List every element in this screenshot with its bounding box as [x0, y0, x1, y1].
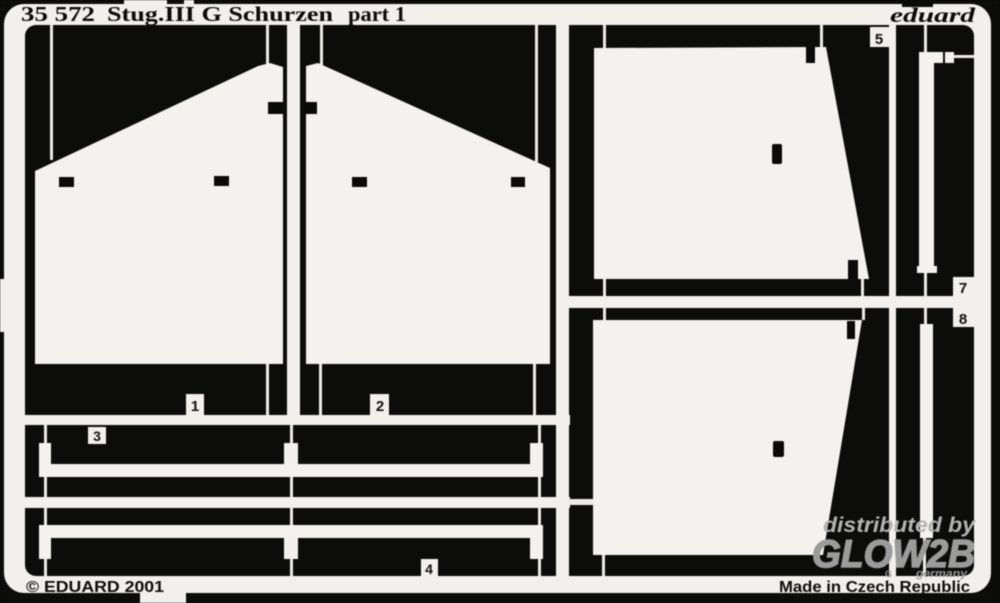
svg-text:Made in Czech Republic: Made in Czech Republic — [779, 579, 970, 596]
svg-text:3: 3 — [93, 428, 101, 444]
svg-text:part 1: part 1 — [348, 2, 406, 26]
svg-text:eduard: eduard — [890, 3, 976, 27]
svg-text:germany: germany — [915, 568, 968, 580]
svg-text:4: 4 — [425, 561, 433, 577]
svg-text:2: 2 — [376, 398, 384, 415]
svg-text:7: 7 — [959, 280, 967, 297]
svg-text:Stug.III G Schurzen: Stug.III G Schurzen — [107, 2, 333, 26]
svg-text:G: G — [885, 569, 892, 579]
svg-text:5: 5 — [875, 31, 883, 48]
svg-text:© EDUARD 2001: © EDUARD 2001 — [26, 579, 164, 596]
svg-text:1: 1 — [191, 398, 199, 415]
svg-text:8: 8 — [959, 311, 967, 328]
svg-text:35 572: 35 572 — [21, 2, 95, 26]
